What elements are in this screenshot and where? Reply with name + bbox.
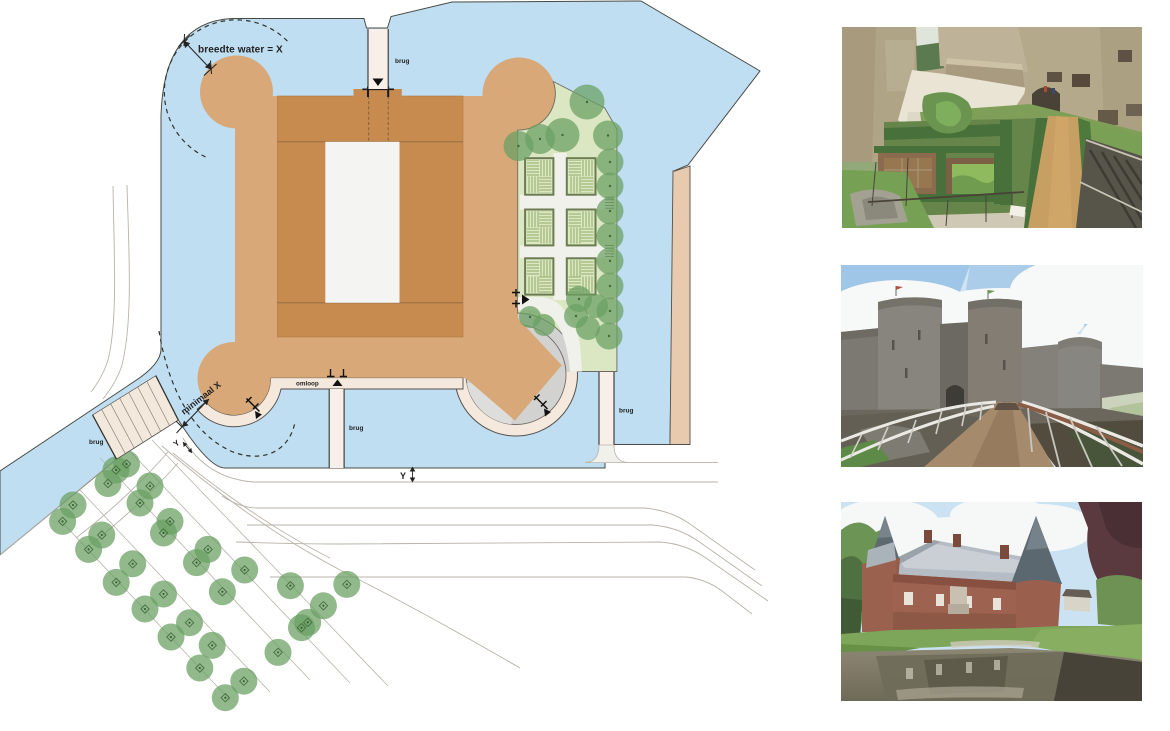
svg-text:brug: brug	[89, 439, 103, 446]
svg-text:breedte water = X: breedte water = X	[198, 45, 283, 56]
svg-text:brug: brug	[349, 425, 363, 432]
svg-text:brug: brug	[619, 408, 633, 415]
svg-text:Y: Y	[172, 438, 182, 449]
svg-text:omloop: omloop	[296, 381, 319, 388]
svg-text:Y: Y	[400, 471, 406, 481]
svg-text:brug: brug	[395, 58, 409, 65]
